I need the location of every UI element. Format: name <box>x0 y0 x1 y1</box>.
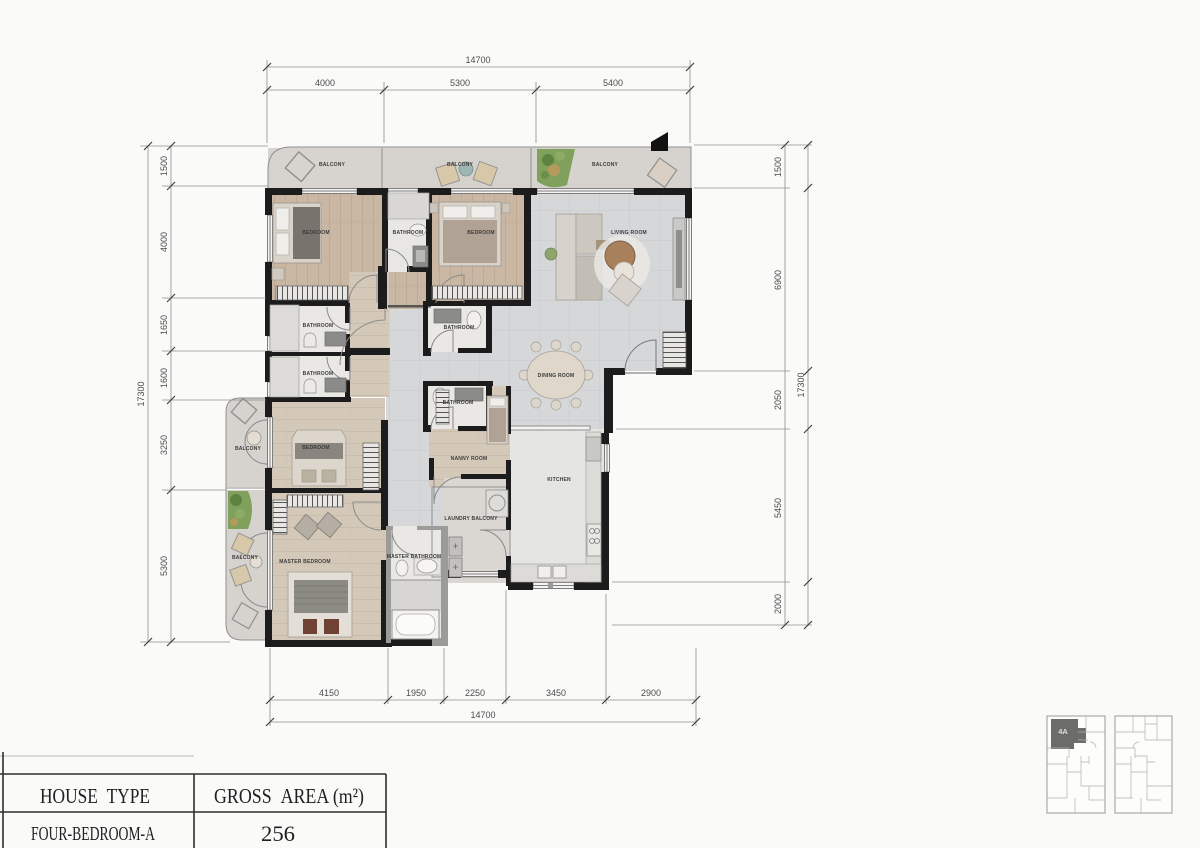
svg-text:BATHROOM: BATHROOM <box>303 323 334 329</box>
svg-text:6900: 6900 <box>773 270 783 290</box>
svg-text:4000: 4000 <box>159 232 169 252</box>
svg-text:1600: 1600 <box>159 368 169 388</box>
svg-text:4150: 4150 <box>319 688 339 698</box>
svg-text:GROSS AREA (m²): GROSS AREA (m²) <box>214 784 364 808</box>
svg-text:17300: 17300 <box>136 381 146 406</box>
svg-text:MASTER BEDROOM: MASTER BEDROOM <box>279 559 330 565</box>
svg-text:BATHROOM: BATHROOM <box>443 400 474 406</box>
svg-text:256: 256 <box>261 821 295 846</box>
svg-text:BALCONY: BALCONY <box>232 555 259 561</box>
svg-text:5300: 5300 <box>159 556 169 576</box>
svg-text:3450: 3450 <box>546 688 566 698</box>
svg-text:BALCONY: BALCONY <box>592 162 619 168</box>
svg-text:FOUR-BEDROOM-A: FOUR-BEDROOM-A <box>31 823 155 845</box>
svg-text:KITCHEN: KITCHEN <box>547 477 571 483</box>
svg-text:1950: 1950 <box>406 688 426 698</box>
svg-text:BATHROOM: BATHROOM <box>303 371 334 377</box>
svg-text:1500: 1500 <box>159 156 169 176</box>
svg-text:NANNY ROOM: NANNY ROOM <box>451 456 488 462</box>
svg-text:17300: 17300 <box>796 372 806 397</box>
svg-text:4A: 4A <box>1058 727 1068 736</box>
svg-text:BATHROOM: BATHROOM <box>444 325 475 331</box>
svg-text:LAUNDRY BALCONY: LAUNDRY BALCONY <box>444 516 498 522</box>
svg-text:HOUSE TYPE: HOUSE TYPE <box>40 784 150 808</box>
svg-text:5400: 5400 <box>603 78 623 88</box>
svg-text:5450: 5450 <box>773 498 783 518</box>
svg-text:2000: 2000 <box>773 594 783 614</box>
svg-text:BALCONY: BALCONY <box>235 446 262 452</box>
svg-text:14700: 14700 <box>470 710 495 720</box>
svg-text:LIVING ROOM: LIVING ROOM <box>611 230 647 236</box>
svg-text:2900: 2900 <box>641 688 661 698</box>
svg-text:2050: 2050 <box>773 390 783 410</box>
svg-text:BATHROOM: BATHROOM <box>393 230 424 236</box>
svg-text:4000: 4000 <box>315 78 335 88</box>
svg-text:DINING ROOM: DINING ROOM <box>538 373 575 379</box>
svg-text:BALCONY: BALCONY <box>319 162 346 168</box>
svg-text:MASTER BATHROOM: MASTER BATHROOM <box>387 554 442 560</box>
svg-text:BEDROOM: BEDROOM <box>302 445 330 451</box>
svg-text:BEDROOM: BEDROOM <box>467 230 495 236</box>
svg-text:1500: 1500 <box>773 157 783 177</box>
svg-text:BALCONY: BALCONY <box>447 162 474 168</box>
svg-text:1650: 1650 <box>159 315 169 335</box>
svg-text:5300: 5300 <box>450 78 470 88</box>
svg-text:3250: 3250 <box>159 435 169 455</box>
svg-text:2250: 2250 <box>465 688 485 698</box>
svg-text:14700: 14700 <box>465 55 490 65</box>
svg-text:BEDROOM: BEDROOM <box>302 230 330 236</box>
